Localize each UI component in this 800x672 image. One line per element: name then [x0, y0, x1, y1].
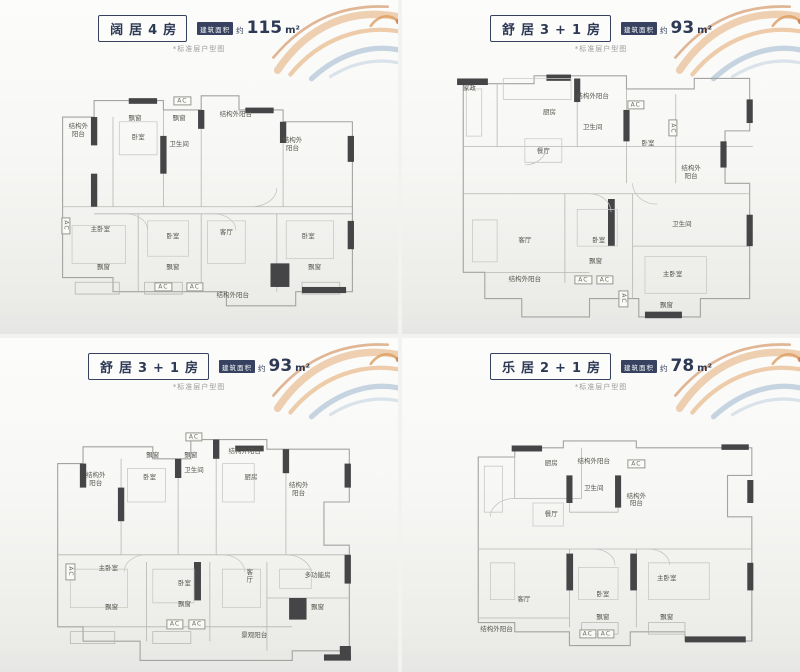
area-type-badge: 建筑面积	[219, 360, 255, 373]
area-approx-label: 约	[660, 25, 668, 36]
ac-unit-label: AC	[596, 276, 613, 285]
phoenix-feather-decoration	[268, 338, 398, 422]
area-unit: m²	[697, 25, 712, 36]
phoenix-feather-decoration	[268, 0, 398, 84]
standard-floor-note: *标准层户型图	[0, 44, 398, 54]
unit-title-badge: 舒居3+1房	[490, 15, 611, 42]
ac-unit-label: AC	[174, 96, 191, 105]
panel-header: 乐居2+1房 建筑面积 约 78 m²	[402, 353, 800, 380]
room-label: 飘窗	[660, 614, 673, 622]
ac-unit-label: AC	[61, 217, 70, 234]
area-type-badge: 建筑面积	[621, 22, 657, 35]
area-group: 建筑面积 约 78 m²	[621, 358, 712, 375]
room-label: 多功能房	[305, 572, 331, 580]
area-group: 建筑面积 约 115 m²	[197, 20, 300, 37]
floorplan-walls	[50, 84, 365, 320]
room-label: 结构外 阳台	[681, 165, 701, 181]
room-label: 卧室	[592, 237, 605, 245]
unit-title: 舒居3+1房	[100, 361, 204, 376]
area-approx-label: 约	[236, 25, 244, 36]
room-label: 主卧室	[663, 271, 683, 279]
ac-unit-label: AC	[668, 120, 677, 137]
room-label: 卧室	[166, 233, 179, 241]
area-unit: m²	[697, 363, 712, 374]
unit-title: 乐居2+1房	[502, 361, 606, 376]
ac-unit-label: AC	[597, 630, 614, 639]
room-label: 卧室	[143, 474, 156, 482]
floorplan-panel-115: 阔居4房 建筑面积 约 115 m² *标准层户型图	[0, 0, 398, 334]
room-label: 厨房	[543, 109, 556, 117]
room-label: 飘窗	[184, 452, 197, 460]
room-label: 结构外 阳台	[283, 138, 303, 154]
floorplan-brochure-page: 阔居4房 建筑面积 约 115 m² *标准层户型图	[0, 0, 800, 672]
room-label: 结构外 阳台	[86, 473, 106, 489]
room-label: 飘窗	[308, 264, 321, 272]
phoenix-feather-decoration	[670, 338, 800, 422]
floorplan-panel-78: 乐居2+1房 建筑面积 约 78 m² *标准层户型图	[402, 338, 800, 672]
standard-floor-note: *标准层户型图	[402, 44, 800, 54]
room-label: 卫生间	[184, 467, 204, 475]
room-label: 结构外阳台	[480, 626, 513, 634]
floorplan-walls	[454, 68, 762, 330]
room-label: 厨房	[545, 460, 558, 468]
room-label: 飘窗	[173, 115, 186, 123]
panel-header: 阔居4房 建筑面积 约 115 m²	[0, 15, 398, 42]
room-label: 家政	[463, 85, 476, 93]
room-label: 客厅	[220, 229, 233, 237]
floorplan-drawing: 家政厨房结构外阳台卫生间AC卧室AC结构外 阳台餐厅客厅卧室飘窗卫生间主卧室飘窗…	[454, 68, 762, 330]
room-label: 餐厅	[537, 148, 550, 156]
room-label: 卫生间	[672, 221, 692, 229]
area-group: 建筑面积 约 93 m²	[621, 20, 712, 37]
room-label: 结构外阳台	[576, 93, 609, 101]
room-label: 客厅	[517, 596, 530, 604]
ac-unit-label: AC	[619, 290, 628, 307]
area-value: 93	[269, 358, 293, 375]
floorplan-panel-93a: 舒居3+1房 建筑面积 约 93 m² *标准层户型图	[402, 0, 800, 334]
room-label: 卫生间	[583, 124, 603, 132]
room-label: 厨房	[245, 474, 258, 482]
ac-unit-label: AC	[166, 620, 183, 629]
room-label: 飘窗	[589, 258, 602, 266]
floorplan-drawing: 结构外 阳台飘窗飘窗AC卧室卫生间结构外阳台结构外 阳台AC主卧室卧室客厅卧室飘…	[50, 84, 365, 320]
ac-unit-label: AC	[579, 630, 596, 639]
ac-unit-label: AC	[185, 433, 202, 442]
room-label: 卧室	[178, 580, 191, 588]
standard-floor-note: *标准层户型图	[402, 382, 800, 392]
room-label: 结构外 阳台	[627, 493, 647, 509]
floorplan-panel-93b: 舒居3+1房 建筑面积 约 93 m² *标准层户型图	[0, 338, 398, 672]
room-label: 结构外 阳台	[69, 123, 89, 139]
area-approx-label: 约	[660, 363, 668, 374]
unit-title: 阔居4房	[110, 23, 182, 38]
room-label: 主卧室	[91, 226, 111, 234]
room-label: 卧室	[642, 140, 655, 148]
room-label: 卫生间	[169, 141, 189, 149]
room-label: 卧室	[132, 134, 145, 142]
panel-header: 舒居3+1房 建筑面积 约 93 m²	[0, 353, 398, 380]
area-group: 建筑面积 约 93 m²	[219, 358, 310, 375]
unit-title-badge: 阔居4房	[98, 15, 187, 42]
room-label: 卧室	[302, 233, 315, 241]
room-label: 客厅	[518, 237, 531, 245]
unit-title: 舒居3+1房	[502, 23, 606, 38]
room-label: 结构外阳台	[228, 448, 261, 456]
room-label: 飘窗	[97, 264, 110, 272]
room-label: 飘窗	[660, 303, 673, 311]
ac-unit-label: AC	[186, 282, 203, 291]
area-type-badge: 建筑面积	[197, 22, 233, 35]
room-label: 结构外阳台	[216, 292, 249, 300]
unit-title-badge: 舒居3+1房	[88, 353, 209, 380]
room-label: 飘窗	[129, 115, 142, 123]
room-label: 飘窗	[311, 604, 324, 612]
room-label: 结构外阳台	[509, 276, 542, 284]
unit-title-badge: 乐居2+1房	[490, 353, 611, 380]
standard-floor-note: *标准层户型图	[0, 382, 398, 392]
room-label: 主卧室	[99, 565, 119, 573]
floorplan-drawing: 厨房结构外阳台卫生间AC餐厅结构外 阳台客厅卧室主卧室飘窗飘窗ACAC结构外阳台	[460, 434, 764, 664]
ac-unit-label: AC	[66, 563, 75, 580]
room-label: 结构外 阳台	[289, 482, 309, 498]
area-value: 93	[671, 20, 695, 37]
room-label: 餐厅	[545, 511, 558, 519]
panel-header: 舒居3+1房 建筑面积 约 93 m²	[402, 15, 800, 42]
ac-unit-label: AC	[155, 282, 172, 291]
floorplan-drawing: AC飘窗飘窗卧室卫生间结构外 阳台结构外阳台厨房结构外 阳台主卧室卧室飘窗飘窗A…	[45, 430, 362, 670]
room-label: 结构外阳台	[578, 458, 611, 466]
area-value: 115	[247, 20, 283, 37]
room-label: 景观阳台	[241, 632, 267, 640]
area-unit: m²	[285, 25, 300, 36]
ac-unit-label: AC	[575, 276, 592, 285]
area-unit: m²	[295, 363, 310, 374]
area-approx-label: 约	[258, 363, 266, 374]
room-label: 卧室	[596, 591, 609, 599]
area-value: 78	[671, 358, 695, 375]
room-label: 飘窗	[146, 452, 159, 460]
room-label: 结构外阳台	[220, 111, 253, 119]
room-label: 飘窗	[178, 601, 191, 609]
room-label: 飘窗	[105, 604, 118, 612]
ac-unit-label: AC	[189, 620, 206, 629]
ac-unit-label: AC	[627, 100, 644, 109]
ac-unit-label: AC	[628, 459, 645, 468]
room-label: 客厅	[244, 569, 252, 584]
area-type-badge: 建筑面积	[621, 360, 657, 373]
room-label: 飘窗	[166, 264, 179, 272]
room-label: 主卧室	[657, 575, 677, 583]
room-label: 飘窗	[596, 614, 609, 622]
room-label: 卫生间	[584, 485, 604, 493]
